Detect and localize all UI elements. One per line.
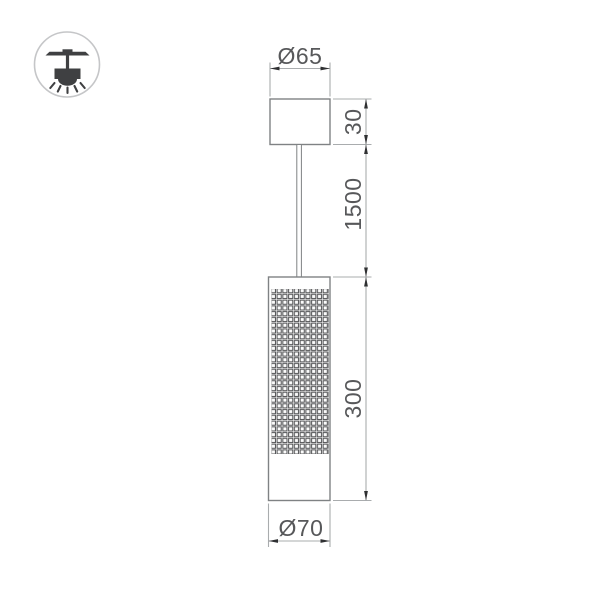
dim-canopy-height-label: 30	[340, 109, 366, 136]
dim-body-height-label: 300	[340, 379, 366, 419]
icon-ceiling-mount	[63, 49, 73, 52]
technical-drawing: Ø65 30 1500 300 Ø70	[0, 0, 600, 600]
dim-body-diameter-label: Ø70	[279, 515, 324, 541]
lamp-body-mesh	[272, 289, 330, 454]
canopy-outline	[270, 99, 330, 145]
dim-suspension-length-label: 1500	[340, 177, 366, 230]
suspension-wire	[297, 145, 302, 278]
icon-ceiling-bar	[46, 52, 90, 56]
technical-drawing-page: Ø65 30 1500 300 Ø70	[0, 0, 600, 600]
pendant-ceiling-light-icon	[35, 32, 100, 97]
icon-lamp-body	[55, 69, 81, 80]
dim-canopy-diameter-label: Ø65	[278, 43, 323, 69]
icon-stem	[66, 56, 69, 70]
